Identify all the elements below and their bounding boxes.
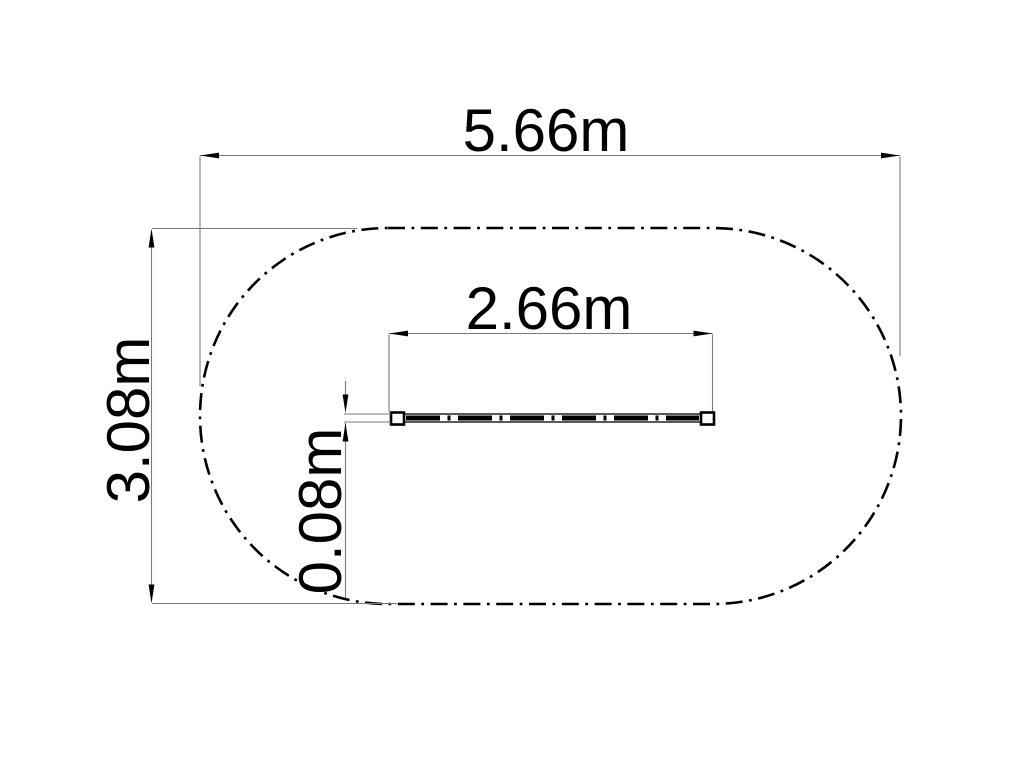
- beam-end-cap-right: [701, 413, 714, 425]
- drawing-svg: 5.66m 3.08m 2.66m 0.08: [0, 0, 1017, 768]
- overall-width-label: 5.66m: [463, 97, 630, 164]
- overall-height-label: 3.08m: [95, 337, 162, 504]
- technical-drawing-canvas: 5.66m 3.08m 2.66m 0.08: [0, 0, 1017, 768]
- beam-length-label: 2.66m: [466, 275, 633, 342]
- beam-end-cap-left: [391, 413, 404, 425]
- beam-width-label: 0.08m: [287, 428, 354, 595]
